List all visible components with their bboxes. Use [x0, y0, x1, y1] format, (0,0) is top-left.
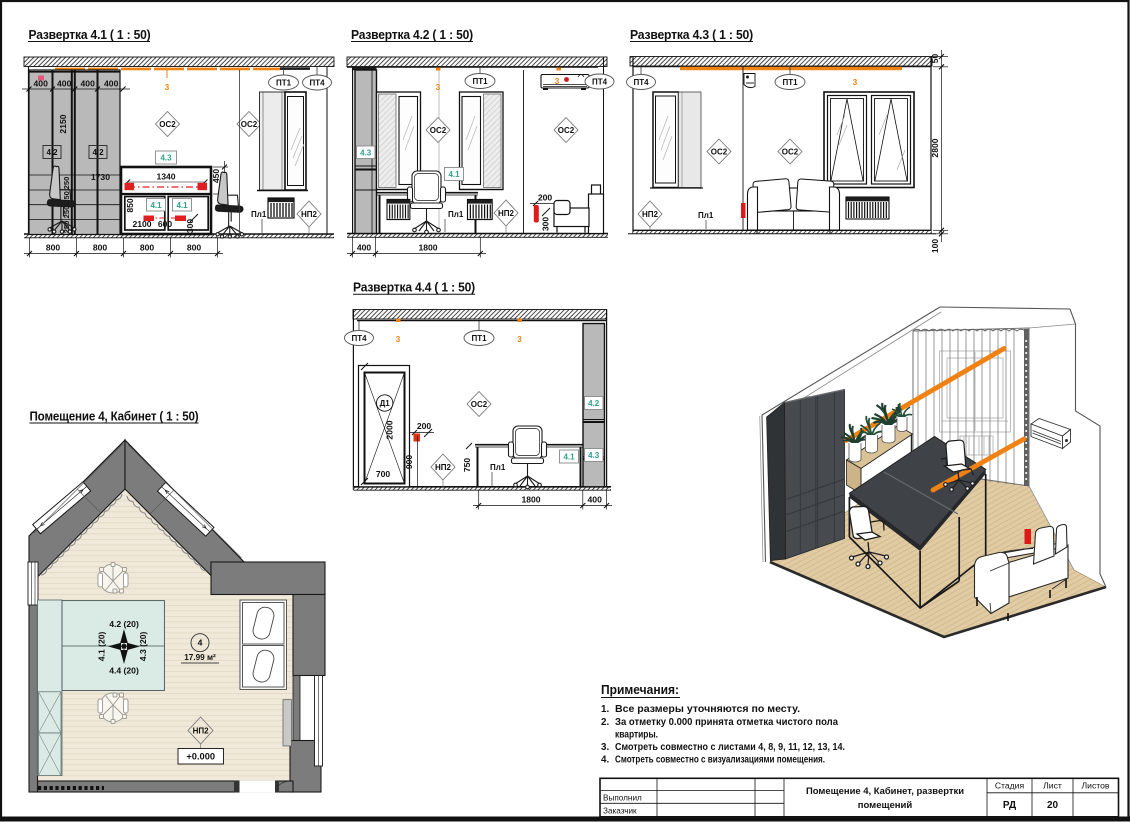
svg-text:НП2: НП2	[498, 209, 515, 218]
svg-text:900: 900	[404, 455, 414, 470]
svg-text:4.4 (20): 4.4 (20)	[109, 666, 139, 676]
svg-text:ОС2: ОС2	[430, 126, 447, 135]
svg-text:ПТ4: ПТ4	[351, 334, 367, 343]
svg-text:400: 400	[57, 79, 72, 89]
svg-text:800: 800	[93, 243, 108, 253]
svg-text:ОС2: ОС2	[471, 400, 488, 409]
svg-text:Все размеры уточняются по мест: Все размеры уточняются по месту.	[615, 704, 800, 715]
svg-text:НП2: НП2	[642, 210, 659, 219]
svg-text:400: 400	[588, 495, 603, 505]
svg-text:100: 100	[930, 239, 940, 254]
svg-text:400: 400	[81, 79, 96, 89]
svg-text:200: 200	[417, 421, 432, 431]
svg-text:400: 400	[104, 79, 119, 89]
svg-text:ПТ4: ПТ4	[309, 79, 325, 88]
svg-text:600: 600	[158, 219, 173, 229]
svg-text:4.2 (20): 4.2 (20)	[109, 619, 139, 629]
svg-text:250: 250	[62, 177, 71, 190]
svg-text:400: 400	[34, 79, 49, 89]
svg-text:4.3: 4.3	[588, 451, 600, 460]
svg-text:4.2: 4.2	[46, 148, 58, 157]
svg-text:НП2: НП2	[435, 463, 452, 472]
svg-text:Смотреть совместно с листами 4: Смотреть совместно с листами 4, 8, 9, 11…	[615, 742, 845, 753]
svg-text:НП2: НП2	[301, 210, 318, 219]
svg-text:ПТ1: ПТ1	[471, 334, 487, 343]
svg-text:1800: 1800	[521, 495, 540, 505]
svg-text:3: 3	[555, 77, 560, 86]
svg-text:3: 3	[165, 83, 170, 92]
svg-text:ПТ1: ПТ1	[472, 77, 488, 86]
svg-text:Пл1: Пл1	[698, 211, 714, 220]
svg-text:НП2: НП2	[193, 727, 210, 736]
svg-text:ОС2: ОС2	[782, 148, 799, 157]
svg-text:ОС2: ОС2	[159, 120, 176, 129]
svg-text:ПТ1: ПТ1	[782, 78, 798, 87]
svg-text:1340: 1340	[156, 172, 175, 182]
svg-text:4.3: 4.3	[360, 148, 372, 157]
svg-text:Лист: Лист	[1043, 781, 1062, 791]
svg-text:3: 3	[517, 335, 522, 344]
svg-text:3.: 3.	[601, 742, 609, 753]
svg-text:3: 3	[396, 335, 401, 344]
svg-text:50: 50	[930, 54, 940, 64]
svg-text:1800: 1800	[418, 243, 437, 253]
svg-text:Д1: Д1	[380, 399, 391, 408]
svg-text:1.: 1.	[601, 704, 609, 715]
svg-text:20: 20	[1047, 800, 1059, 811]
svg-text:ОС2: ОС2	[558, 126, 575, 135]
svg-text:квартиры.: квартиры.	[615, 730, 658, 741]
svg-text:Смотреть совместно с визуализа: Смотреть совместно с визуализациями поме…	[615, 755, 825, 766]
svg-text:2800: 2800	[930, 138, 940, 157]
svg-text:4.1 (20): 4.1 (20)	[97, 631, 107, 661]
svg-text:Развертка 4.1 ( 1 : 50): Развертка 4.1 ( 1 : 50)	[29, 27, 151, 42]
svg-text:800: 800	[140, 243, 155, 253]
svg-text:4.1: 4.1	[176, 201, 188, 210]
svg-text:4: 4	[198, 638, 203, 648]
svg-text:3: 3	[436, 83, 441, 92]
svg-text:4.1: 4.1	[448, 170, 460, 179]
svg-text:ПТ4: ПТ4	[592, 78, 608, 87]
svg-text:Стадия: Стадия	[995, 781, 1025, 791]
svg-text:200: 200	[538, 193, 553, 203]
svg-text:450: 450	[211, 169, 221, 184]
svg-text:+0.000: +0.000	[186, 752, 215, 762]
svg-text:4.1: 4.1	[563, 453, 575, 462]
svg-text:4.3 (20): 4.3 (20)	[138, 631, 148, 661]
svg-text:Помещение 4, Кабинет, развертк: Помещение 4, Кабинет, развертки	[806, 786, 964, 797]
svg-text:Развертка 4.2 ( 1 : 50): Развертка 4.2 ( 1 : 50)	[351, 27, 473, 42]
svg-text:750: 750	[462, 458, 472, 473]
svg-text:Пл1: Пл1	[251, 210, 267, 219]
svg-text:Развертка 4.3 ( 1 : 50): Развертка 4.3 ( 1 : 50)	[630, 27, 753, 42]
svg-text:4.: 4.	[601, 755, 609, 766]
svg-text:4.1: 4.1	[150, 201, 162, 210]
svg-text:Пл1: Пл1	[448, 210, 464, 219]
svg-text:4.2: 4.2	[588, 399, 600, 408]
svg-text:700: 700	[376, 469, 391, 479]
svg-text:ПТ4: ПТ4	[633, 78, 649, 87]
svg-text:Пл1: Пл1	[490, 463, 506, 472]
svg-text:800: 800	[46, 243, 61, 253]
svg-text:помещений: помещений	[858, 800, 913, 811]
svg-text:4.3: 4.3	[160, 154, 172, 163]
svg-text:Примечания:: Примечания:	[601, 683, 679, 697]
svg-text:300: 300	[185, 219, 195, 234]
svg-text:РД: РД	[1003, 800, 1016, 811]
svg-text:За отметку 0.000 принята отмет: За отметку 0.000 принята отметка чистого…	[615, 717, 839, 728]
svg-text:ОС2: ОС2	[241, 120, 258, 129]
svg-text:2150: 2150	[58, 114, 68, 133]
svg-text:Листов: Листов	[1082, 781, 1110, 791]
svg-text:ОС2: ОС2	[711, 148, 728, 157]
svg-text:2.: 2.	[601, 717, 609, 728]
svg-text:Заказчик: Заказчик	[603, 807, 637, 816]
svg-text:850: 850	[125, 198, 135, 213]
svg-text:Выполнил: Выполнил	[603, 794, 642, 803]
svg-text:300: 300	[541, 217, 551, 232]
svg-text:2000: 2000	[385, 420, 395, 439]
svg-text:400: 400	[357, 243, 372, 253]
svg-text:4.2: 4.2	[92, 148, 104, 157]
svg-text:3: 3	[853, 78, 858, 87]
svg-text:17.99 м²: 17.99 м²	[184, 653, 216, 662]
svg-text:800: 800	[187, 243, 202, 253]
svg-text:Помещение 4, Кабинет ( 1 : 50): Помещение 4, Кабинет ( 1 : 50)	[30, 409, 199, 424]
svg-text:1730: 1730	[91, 172, 110, 182]
svg-text:Развертка 4.4 ( 1 : 50): Развертка 4.4 ( 1 : 50)	[353, 280, 475, 295]
svg-text:ПТ1: ПТ1	[276, 79, 292, 88]
svg-text:2100: 2100	[132, 219, 151, 229]
